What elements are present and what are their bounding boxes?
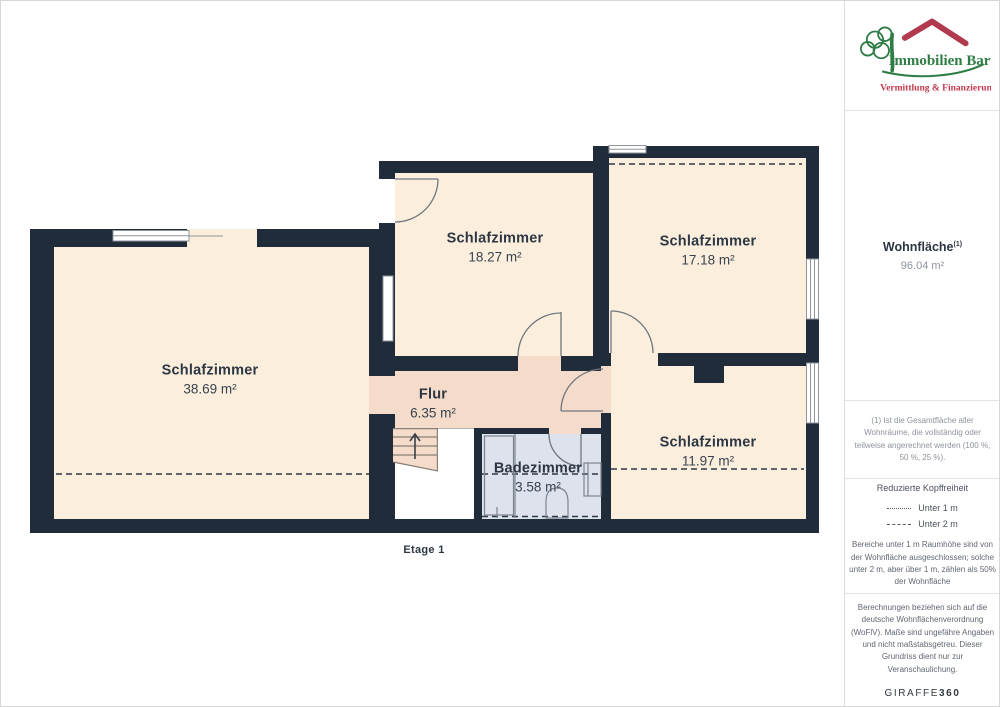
immobilien-bart-logo: Immobilien Bart Vermittlung & Finanzieru… <box>855 13 991 99</box>
page: Schlafzimmer 38.69 m² Schlafzimmer 18.27… <box>0 0 1000 707</box>
floor-plan: Schlafzimmer 38.69 m² Schlafzimmer 18.27… <box>1 1 844 707</box>
legend-note: Bereiche unter 1 m Raumhöhe sind von der… <box>849 539 996 589</box>
wall-niche <box>383 276 393 341</box>
disclaimer-text: Berechnungen beziehen sich auf die deuts… <box>850 602 995 676</box>
window-icon <box>113 231 189 242</box>
roof-icon <box>904 21 965 43</box>
sidebar: Immobilien Bart Vermittlung & Finanzieru… <box>844 1 1000 707</box>
logo-section: Immobilien Bart Vermittlung & Finanzieru… <box>845 1 1000 111</box>
legend-title: Reduzierte Kopffreiheit <box>877 483 968 493</box>
window-icon <box>609 146 646 154</box>
logo-subtitle: Vermittlung & Finanzierung <box>880 83 991 93</box>
tree-icon <box>860 27 891 58</box>
living-area-label: Wohnfläche(1) <box>883 240 962 254</box>
window-icon <box>807 363 819 423</box>
dashed-line-icon <box>887 524 911 525</box>
footnote-section: (1) Ist die Gesamtfläche aller Wohnräume… <box>845 401 1000 479</box>
dotted-line-icon <box>887 508 911 509</box>
legend-item-under-2m: Unter 2 m <box>887 519 958 529</box>
footnote-text: (1) Ist die Gesamtfläche aller Wohnräume… <box>850 415 995 465</box>
living-area-section: Wohnfläche(1) 96.04 m² <box>845 111 1000 401</box>
footnote-marker: (1) <box>954 240 963 247</box>
living-area-value: 96.04 m² <box>901 260 944 272</box>
window-icon <box>807 259 819 319</box>
floor-level-label: Etage 1 <box>403 544 444 556</box>
legend-section: Reduzierte Kopffreiheit Unter 1 m Unter … <box>845 479 1000 594</box>
giraffe360-brand: GIRAFFE360 <box>884 688 960 699</box>
legend-item-under-1m: Unter 1 m <box>887 503 958 513</box>
disclaimer-section: Berechnungen beziehen sich auf die deuts… <box>845 594 1000 707</box>
floor-plan-drawing <box>1 1 844 707</box>
